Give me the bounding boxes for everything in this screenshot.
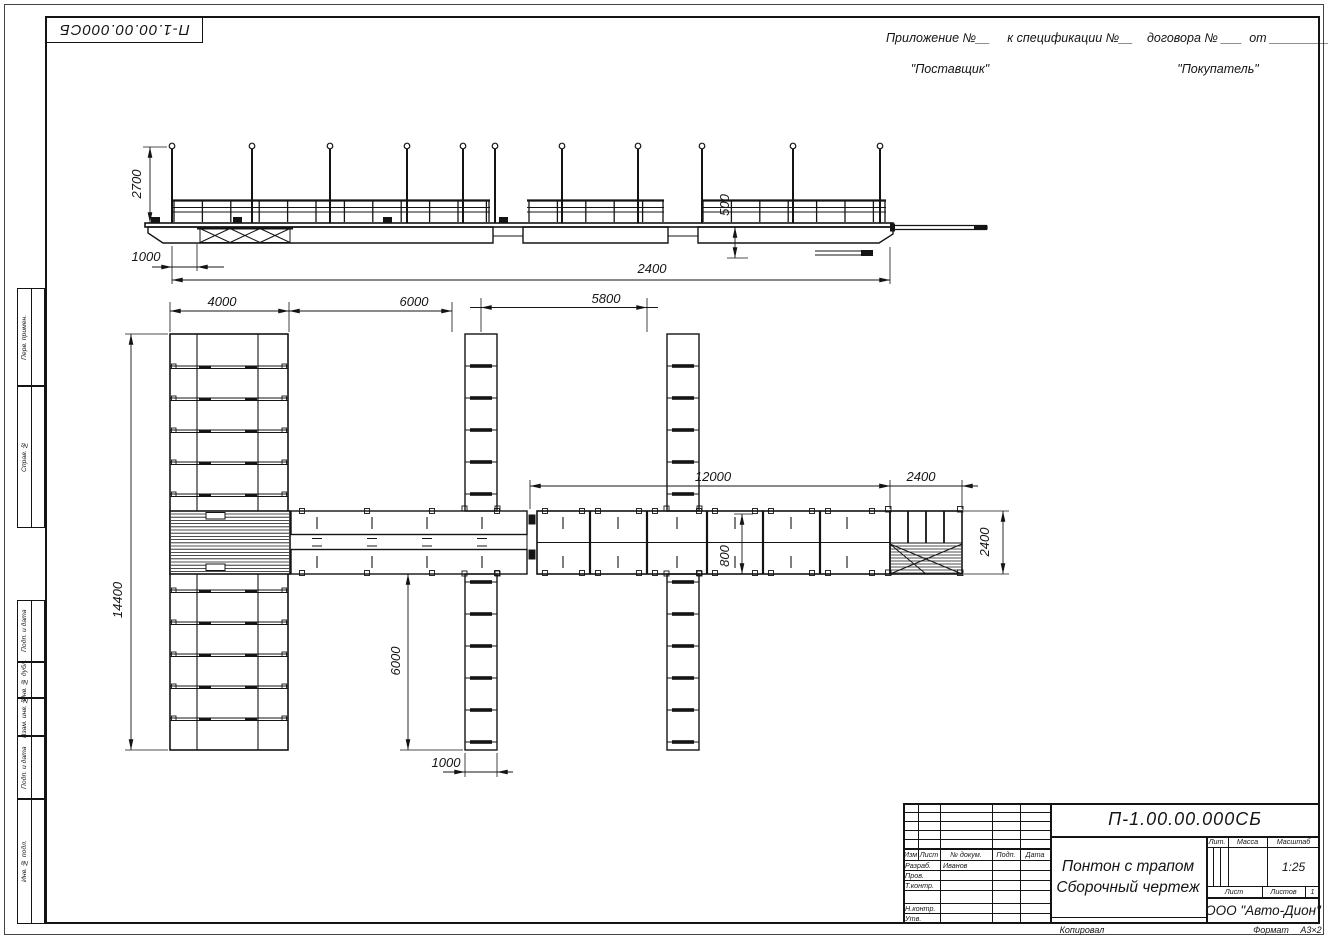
drawing-primitive [698,227,893,243]
titleblock-line [903,870,1050,871]
format-value: А3×2 [1296,925,1326,935]
drawing-primitive [470,708,492,712]
sig-name-prov [941,870,991,880]
drawing-primitive [529,550,536,560]
side-elevation-view [145,143,987,256]
dim-gangway-width: 2400 [977,527,992,558]
titleblock-line [1050,917,1206,918]
sig-name-utv [941,913,991,924]
drawing-primitive [470,580,492,584]
drawing-primitive [672,396,694,400]
dim-left-offset: 1000 [132,249,162,264]
dim-bay-3: 5800 [592,291,622,306]
sig-label-tkontr: Т.контр. [903,880,940,890]
titleblock-line [903,860,1050,861]
titleblock-line [1020,803,1021,924]
titleblock-line [903,903,1050,904]
titleblock-line [1267,836,1268,886]
drawing-primitive [245,430,257,434]
dim-finger-length: 6000 [388,646,403,676]
dim-walkway-width: 800 [717,544,732,566]
drawing-primitive [890,544,926,574]
drawing-primitive [245,590,257,594]
drawing-primitive [672,644,694,648]
titleblock-line [1213,847,1214,886]
titleblock-line [1220,847,1221,886]
sig-name-tkontr [941,880,991,890]
drawing-primitive [861,250,873,256]
titleblock-line [1050,803,1052,924]
drawing-primitive [470,676,492,680]
drawing-primitive [199,366,211,370]
drawing-primitive [470,428,492,432]
drawing-primitive [199,494,211,498]
dim-finger-width: 1000 [432,755,462,770]
drawing-primitive [470,364,492,368]
sig-name-razrab: Иванов [941,860,991,870]
drawing-primitive [529,515,536,525]
drawing-primitive [470,644,492,648]
drawing-primitive [300,571,305,576]
drawing-primitive [327,143,333,149]
drawing-canvas: 2700 1000 500 2400 4000 6000 5800 12000 … [0,0,1328,939]
sig-label-nkontr: Н.контр. [903,903,940,913]
titleblock-line [903,848,1050,850]
dim-gangway-length: 2400 [906,469,937,484]
drawing-primitive [465,334,497,511]
drawing-primitive [199,590,211,594]
titleblock-line [1206,847,1320,848]
titleblock-doc-number: П-1.00.00.000СБ [1050,803,1320,836]
th-list: Лист [918,848,940,860]
drawing-primitive [199,622,211,626]
drawing-primitive [430,571,435,576]
titleblock-line [1262,886,1263,897]
drawing-primitive [199,718,211,722]
drawing-primitive [245,398,257,402]
drawing-primitive [404,143,410,149]
drawing-primitive [245,462,257,466]
drawing-primitive [169,143,175,149]
drawing-primitive [206,564,225,571]
drawing-primitive [493,227,523,236]
drawing-primitive [383,217,392,223]
drawing-primitive [470,612,492,616]
titleblock-line [940,803,941,924]
sig-label-utv: Утв. [903,913,940,924]
drawing-primitive [460,143,466,149]
scale-value: 1:25 [1267,847,1320,886]
drawing-primitive [672,428,694,432]
drawing-primitive [206,513,225,520]
titleblock-line [1228,836,1229,886]
title-line-1: Понтон с трапом [1062,856,1194,877]
drawing-primitive [635,143,641,149]
drawing-primitive [890,224,895,232]
drawing-primitive [492,143,498,149]
drawing-primitive [667,334,699,511]
drawing-primitive [199,686,211,690]
dim-overall-width: 14400 [110,581,125,618]
plan-view [170,334,963,750]
th-izm: Изм [903,848,918,860]
organization-name: ООО "Авто-Дион" [1206,897,1320,924]
th-podp: Подп. [992,848,1020,860]
drawing-primitive [672,676,694,680]
titleblock-line [1206,897,1320,899]
format-label: Формат [1248,925,1294,935]
drawing-primitive [291,511,527,535]
sig-label-razrab: Разраб. [903,860,940,870]
drawing-primitive [523,227,668,243]
drawing-primitive [672,460,694,464]
titleblock-line [903,830,1050,831]
drawing-primitive [199,398,211,402]
th-data: Дата [1020,848,1050,860]
drawing-primitive [470,492,492,496]
drawing-primitive [470,460,492,464]
drawing-primitive [151,217,160,223]
drawing-primitive [470,396,492,400]
drawing-primitive [199,430,211,434]
sig-label-prov: Пров. [903,870,940,880]
titleblock-line [903,821,1050,822]
drawing-primitive [499,217,508,223]
dim-pontoon-length: 2400 [637,261,668,276]
drawing-primitive [245,654,257,658]
drawing-primitive [245,686,257,690]
titleblock-line [992,803,993,924]
sheets-total-value: 1 [1305,886,1320,897]
titleblock-line [918,803,919,860]
dim-mast-height: 2700 [129,169,144,200]
dim-bay-1: 4000 [208,294,238,309]
drawing-sheet: П-1.00.00.000СБ Приложение №__ к специфи… [0,0,1328,939]
dim-bay-2: 6000 [400,294,430,309]
drawing-primitive [291,550,527,575]
drawing-primitive [672,364,694,368]
drawing-primitive [245,718,257,722]
titleblock-title: Понтон с трапом Сборочный чертеж [1050,836,1206,917]
titleblock-line [1206,836,1208,924]
drawing-primitive [249,143,255,149]
drawing-primitive [365,571,370,576]
titleblock-line [903,890,1050,891]
drawing-primitive [672,580,694,584]
titleblock-line [903,913,1050,914]
drawing-primitive [672,740,694,744]
drawing-primitive [668,227,698,236]
drawing-primitive [559,143,565,149]
th-list-small: Лист [1206,886,1262,897]
drawing-primitive [790,143,796,149]
drawing-primitive [245,494,257,498]
drawing-primitive [667,574,699,750]
drawing-primitive [245,366,257,370]
drawing-primitive [199,654,211,658]
titleblock-line [1050,836,1320,838]
dimension-labels: 2700 1000 500 2400 4000 6000 5800 12000 … [110,169,992,770]
drawing-primitive [672,492,694,496]
drawing-primitive [672,612,694,616]
titleblock-line [1206,886,1320,887]
th-listov: Листов [1262,886,1305,897]
dim-walkway-length: 12000 [695,469,732,484]
drawing-primitive [233,217,242,223]
drawing-primitive [672,708,694,712]
drawing-primitive [974,226,987,230]
drawing-primitive [245,622,257,626]
sig-label-blank [903,890,940,903]
dim-freeboard: 500 [717,193,732,215]
titleblock-line [903,812,1050,813]
titleblock-line [903,880,1050,881]
titleblock-line [903,839,1050,840]
drawing-primitive [465,574,497,750]
sig-name-nkontr [941,903,991,913]
title-line-2: Сборочный чертеж [1056,877,1199,898]
drawing-primitive [699,143,705,149]
copied-label: Копировал [1032,925,1132,935]
drawing-primitive [199,462,211,466]
titleblock-line [1305,886,1306,897]
drawing-primitive [470,740,492,744]
th-dokum: № докум. [940,848,992,860]
drawing-primitive [877,143,883,149]
